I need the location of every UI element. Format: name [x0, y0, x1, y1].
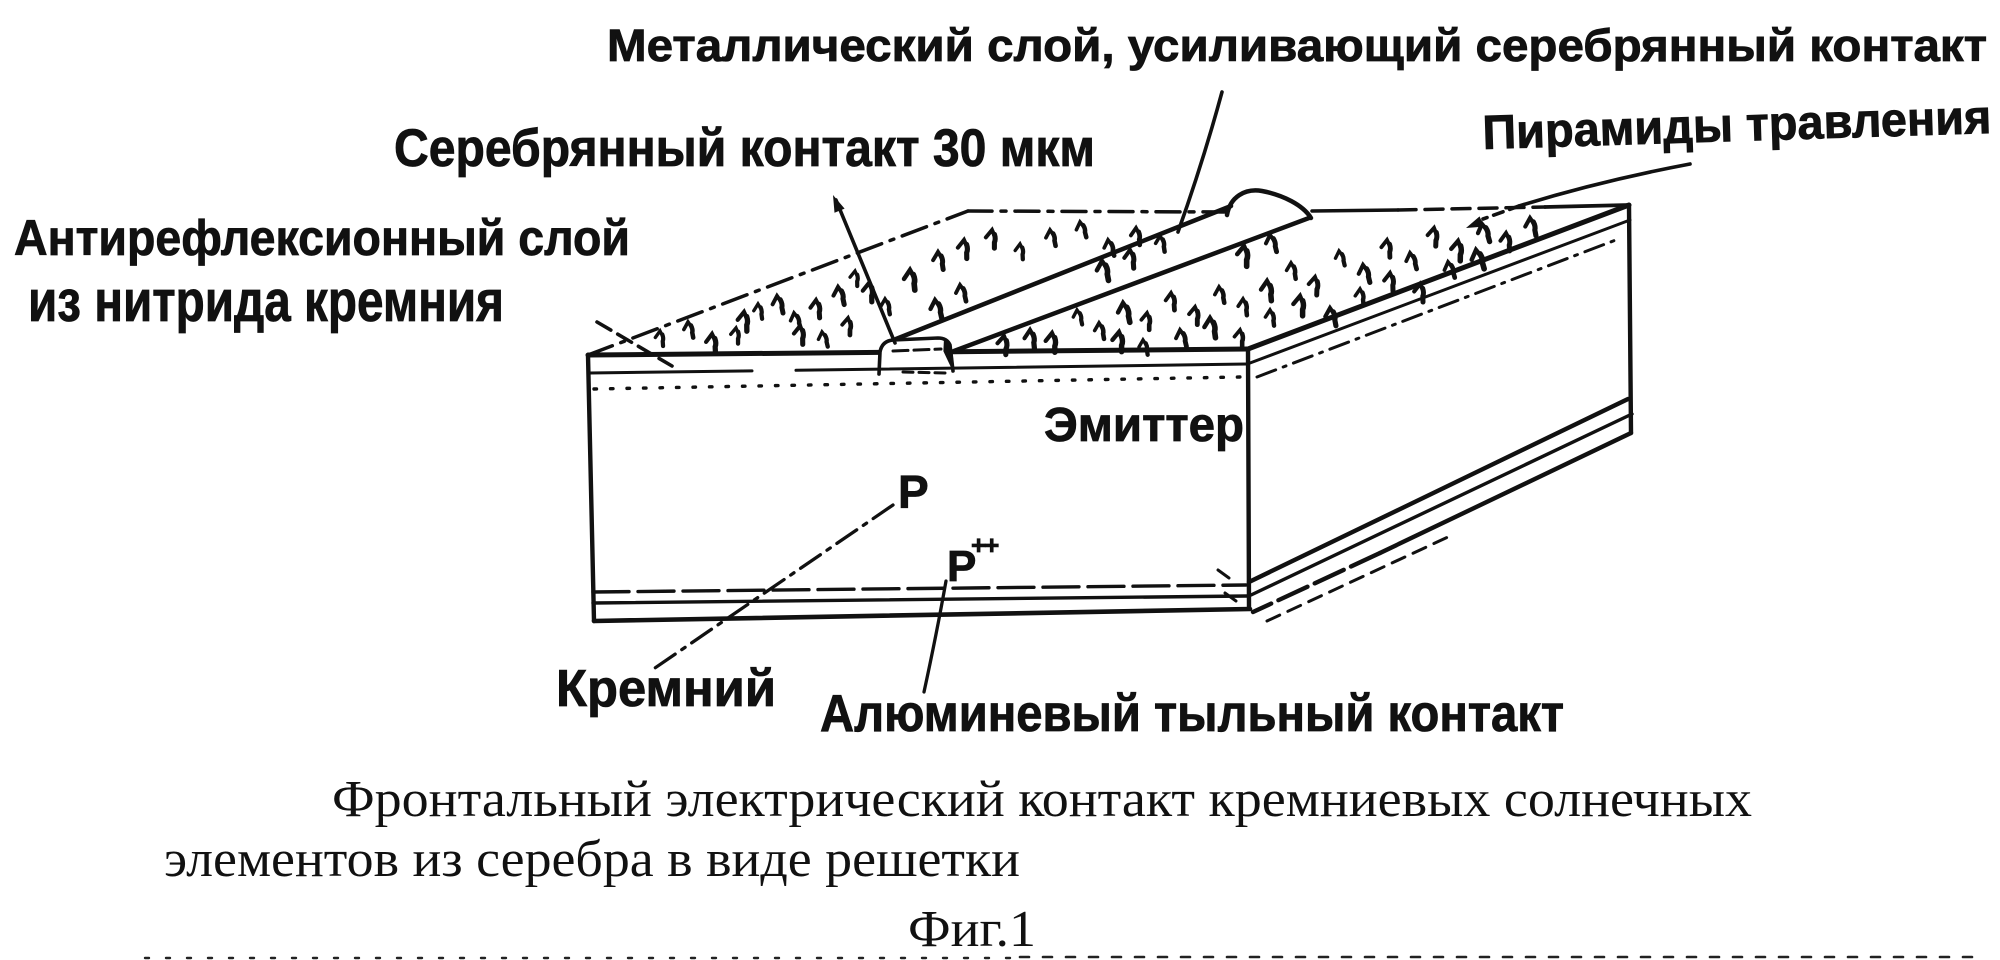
- svg-text:Металлический слой, усиливающи: Металлический слой, усиливающий серебрян…: [607, 20, 1987, 71]
- svg-text:Фиг.1: Фиг.1: [908, 901, 1036, 958]
- svg-text:Серебрянный контакт 30 мкм: Серебрянный контакт 30 мкм: [394, 119, 1095, 178]
- svg-text:Фронтальный электрический конт: Фронтальный электрический контакт кремни…: [332, 771, 1752, 828]
- svg-text:Р: Р: [898, 466, 929, 518]
- svg-text:Кремний: Кремний: [556, 660, 776, 718]
- svg-text:Алюминевый тыльный контакт: Алюминевый тыльный контакт: [820, 685, 1564, 743]
- svg-text:++: ++: [971, 530, 999, 560]
- svg-text:Антирефлексионный слой: Антирефлексионный слой: [14, 210, 630, 266]
- svg-text:из нитрида кремния: из нитрида кремния: [28, 269, 504, 334]
- svg-text:элементов из серебра в виде ре: элементов из серебра в виде решетки: [164, 831, 1020, 888]
- svg-text:Эмиттер: Эмиттер: [1044, 399, 1244, 452]
